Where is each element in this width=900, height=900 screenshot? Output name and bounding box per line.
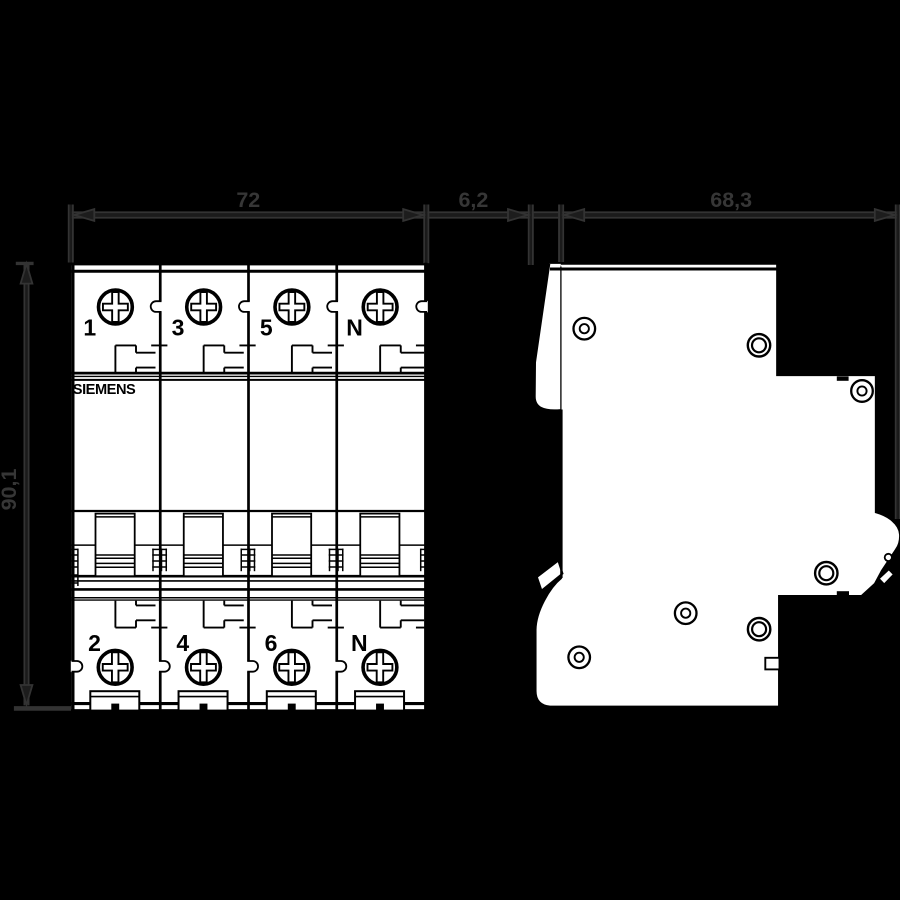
svg-text:SIEMENS: SIEMENS [73, 382, 136, 398]
svg-text:6,2: 6,2 [458, 188, 488, 212]
svg-text:90,1: 90,1 [0, 469, 21, 511]
svg-text:6: 6 [265, 630, 278, 656]
svg-text:1: 1 [83, 315, 96, 341]
svg-text:5: 5 [260, 315, 273, 341]
svg-text:3: 3 [172, 315, 185, 341]
svg-text:68,3: 68,3 [710, 188, 752, 212]
svg-text:N: N [346, 315, 363, 341]
svg-text:4: 4 [176, 630, 189, 656]
svg-text:N: N [351, 630, 368, 656]
svg-text:2: 2 [88, 630, 101, 656]
svg-text:72: 72 [236, 188, 260, 212]
